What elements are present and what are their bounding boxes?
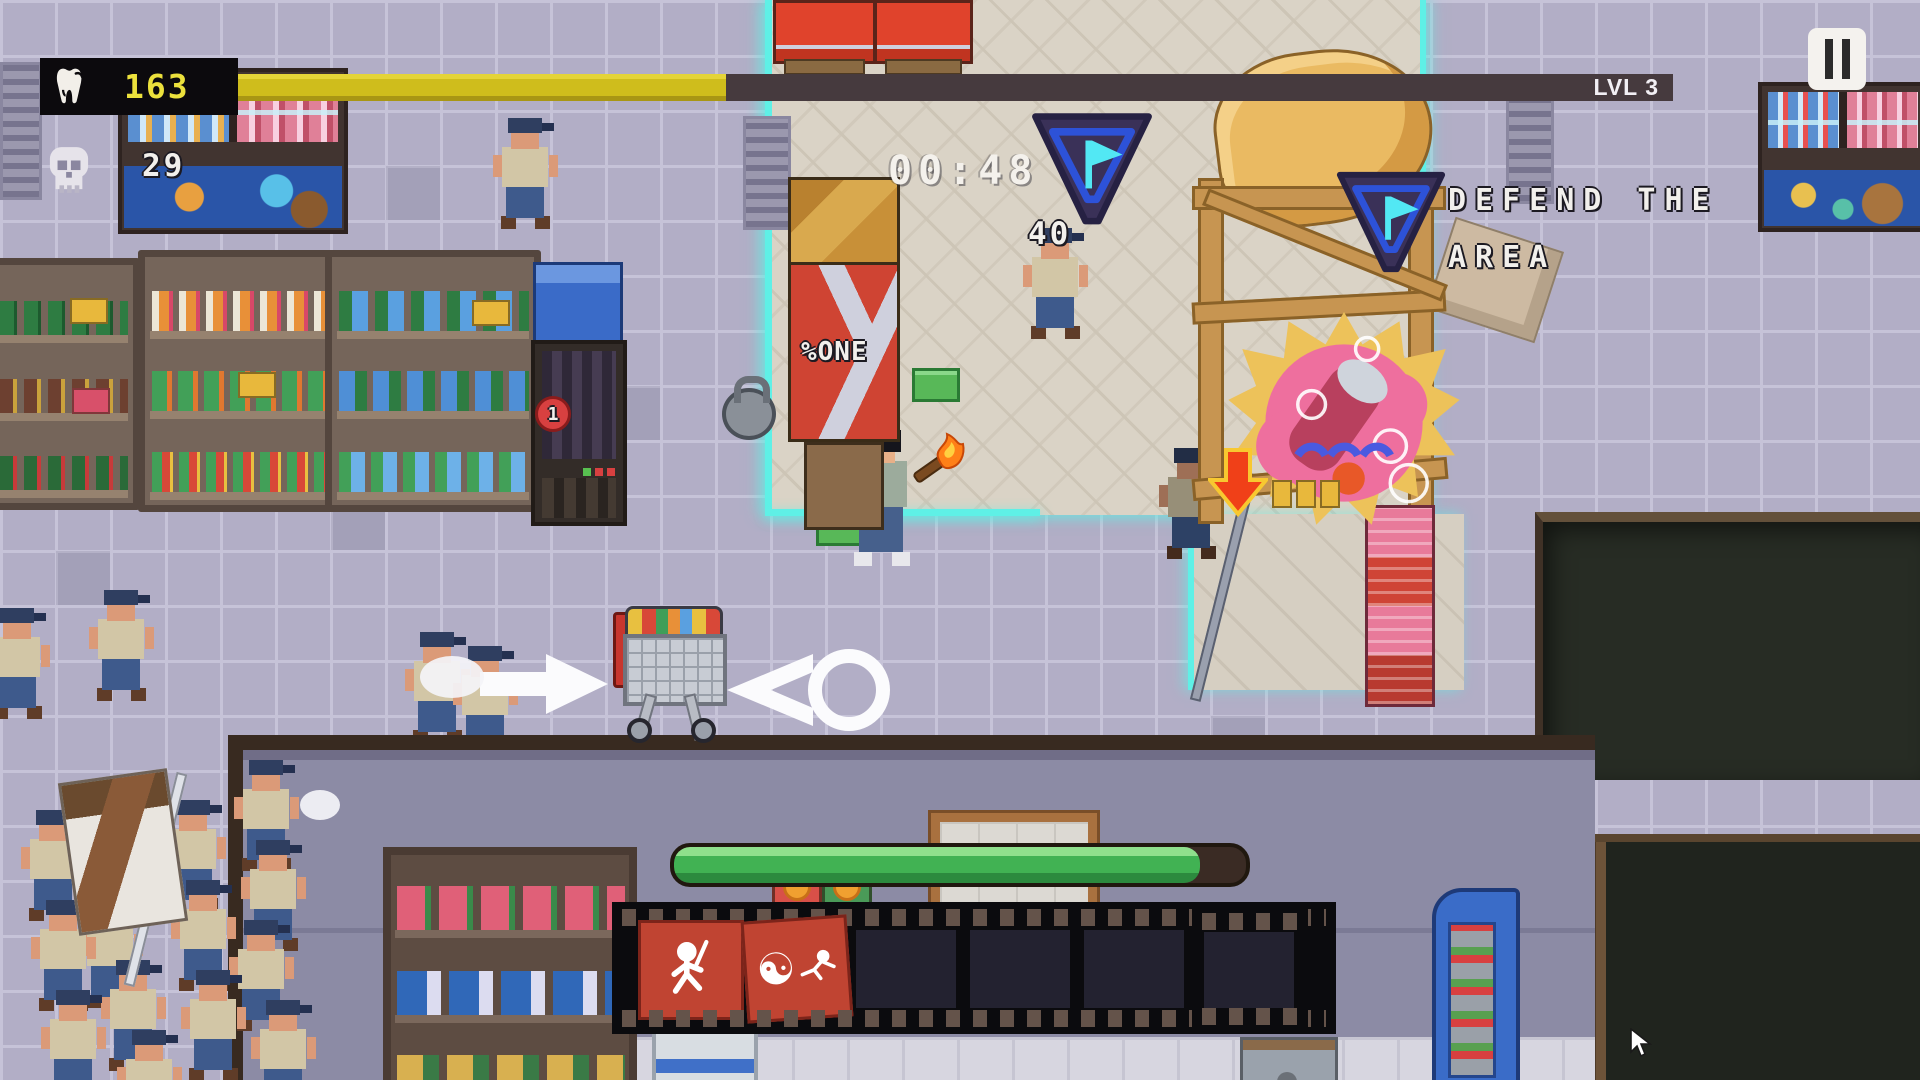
- poster-pink: [1368, 606, 1432, 655]
- film-strip-segment: [1192, 906, 1308, 1032]
- freezer-glass: [1768, 92, 1918, 148]
- fridge-indicator-lights: [583, 468, 615, 476]
- dust-puff: [300, 790, 340, 820]
- film-frame-empty: [856, 930, 956, 1008]
- cart-wheel: [627, 718, 652, 743]
- dust-puff: [420, 656, 484, 698]
- enemy-sprite: [250, 1000, 316, 1080]
- cash-register-cart: [1240, 1037, 1338, 1080]
- freezer-display-case: [1758, 82, 1920, 232]
- wall-vent: [0, 62, 42, 200]
- freezer-products-blue: [1768, 92, 1839, 148]
- enemy-sprite: [40, 990, 106, 1080]
- enemy-sprite: [0, 608, 50, 734]
- xp-bar-fill: [238, 74, 726, 101]
- price-badge-number: 1: [548, 404, 559, 425]
- fighter-icon: [663, 939, 719, 1001]
- floor-tile-accent: [386, 166, 440, 220]
- drink-fridge: 1: [531, 340, 627, 526]
- film-frame-empty: [970, 930, 1070, 1008]
- money-pickup: [912, 368, 960, 402]
- enemy-sprite: [180, 970, 246, 1080]
- enemy-sprite: [116, 1030, 182, 1080]
- red-table: [773, 0, 876, 64]
- shelf-row-mixed-bottles: [150, 423, 338, 500]
- small-front-shelf: [652, 1027, 758, 1080]
- red-down-arrow-icon: [1208, 448, 1268, 518]
- shelf-row-blue-bottles: [337, 343, 529, 420]
- price-tag: [72, 388, 110, 414]
- green-light: [583, 468, 591, 476]
- objective-text: DEFEND THE AREA: [1448, 172, 1719, 286]
- wall-vent: [743, 116, 791, 230]
- pause-icon: [1842, 39, 1850, 79]
- tooth-icon: [56, 66, 90, 108]
- promo-standee: %ONE: [788, 177, 900, 530]
- promo-banner-text: %ONE: [801, 337, 868, 367]
- ice-chest: [533, 262, 623, 346]
- match-timer: 00:48: [888, 148, 1038, 194]
- shelf-row-green-bottles: [0, 270, 128, 343]
- cart-basket: [623, 634, 727, 706]
- red-light: [607, 468, 615, 476]
- standee-base: [804, 442, 884, 530]
- shelf-row-juice-cartons: [150, 262, 338, 339]
- film-frame-fighter: [638, 920, 744, 1020]
- cart-health-fill: [674, 847, 1200, 883]
- enemy-sprite: [492, 118, 558, 244]
- shelf-row-blue-white-boxes: [395, 943, 625, 1022]
- blue-vending-machine: [1432, 888, 1520, 1080]
- price-tag: [70, 298, 108, 324]
- price-tag: [1296, 480, 1316, 508]
- red-table: [874, 0, 973, 64]
- price-tag: [238, 372, 276, 398]
- price-tag: [1320, 480, 1340, 508]
- health-counter-panel: 163: [40, 58, 238, 115]
- back-product-shelf: [383, 847, 637, 1080]
- water-shelf: [325, 250, 541, 512]
- glass-shine: [237, 110, 338, 115]
- objective-line1: DEFEND THE: [1448, 172, 1719, 229]
- shelf-row-pink-boxes: [395, 859, 625, 938]
- red-light: [595, 468, 603, 476]
- poster-column: [1365, 505, 1435, 707]
- freezer-front-graffiti: [1764, 170, 1920, 226]
- film-frame-yinyang: ☯: [741, 914, 854, 1023]
- crowd-banner-flag: [58, 768, 188, 936]
- price-tag: [472, 300, 510, 326]
- yin-yang-icon: ☯: [755, 947, 797, 994]
- flag-marker-icon: [1332, 168, 1450, 280]
- pause-button[interactable]: [1808, 28, 1866, 90]
- glass-shine: [1768, 120, 1839, 125]
- shelf-row-water-bottles: [337, 423, 529, 500]
- bottle-shelf: [0, 258, 140, 510]
- kick-figure-icon: [796, 946, 839, 989]
- pause-icon: [1825, 39, 1833, 79]
- kettlebell-pickup: [722, 388, 776, 440]
- tooth-count: 163: [124, 67, 190, 106]
- flaming-torch-icon: [905, 420, 983, 490]
- game-viewport[interactable]: 1 %ONE: [0, 0, 1920, 1080]
- standee-red-panel: %ONE: [788, 262, 900, 442]
- film-frame-empty: [1204, 932, 1294, 1008]
- glass-shine: [1847, 120, 1918, 125]
- poster-red: [1368, 557, 1432, 606]
- freezer-products-pink: [1847, 92, 1918, 148]
- cursor-icon: [1630, 1028, 1652, 1058]
- film-frame-empty: [1084, 930, 1184, 1008]
- skull-icon: [48, 144, 90, 198]
- price-badge: 1: [535, 396, 571, 432]
- standee-top-panel: [788, 177, 900, 262]
- cart-health-bar: [670, 843, 1250, 887]
- price-tag: [1272, 480, 1292, 508]
- level-label: LVL 3: [1594, 74, 1660, 101]
- objective-line2: AREA: [1448, 229, 1719, 286]
- shopping-cart: [613, 600, 725, 738]
- arrow-right-icon: [480, 652, 610, 716]
- cart-wheel: [691, 718, 716, 743]
- vending-window: [1448, 922, 1496, 1078]
- flag-marker-icon: [1022, 110, 1162, 232]
- poster-red: [1368, 655, 1432, 704]
- arrow-left-with-ring-icon: [725, 648, 893, 732]
- kill-count: 29: [142, 148, 185, 184]
- xp-bar: LVL 3: [238, 74, 1673, 101]
- shelf-row-wine-bottles: [0, 425, 128, 498]
- fridge-bottom-panel: [542, 478, 616, 518]
- kill-counter: 29: [48, 144, 185, 198]
- enemy-sprite: [88, 590, 154, 716]
- damage-popup: 40: [1028, 216, 1071, 252]
- dark-back-room: [1606, 842, 1920, 1080]
- shelf-row-bags: [395, 1028, 625, 1080]
